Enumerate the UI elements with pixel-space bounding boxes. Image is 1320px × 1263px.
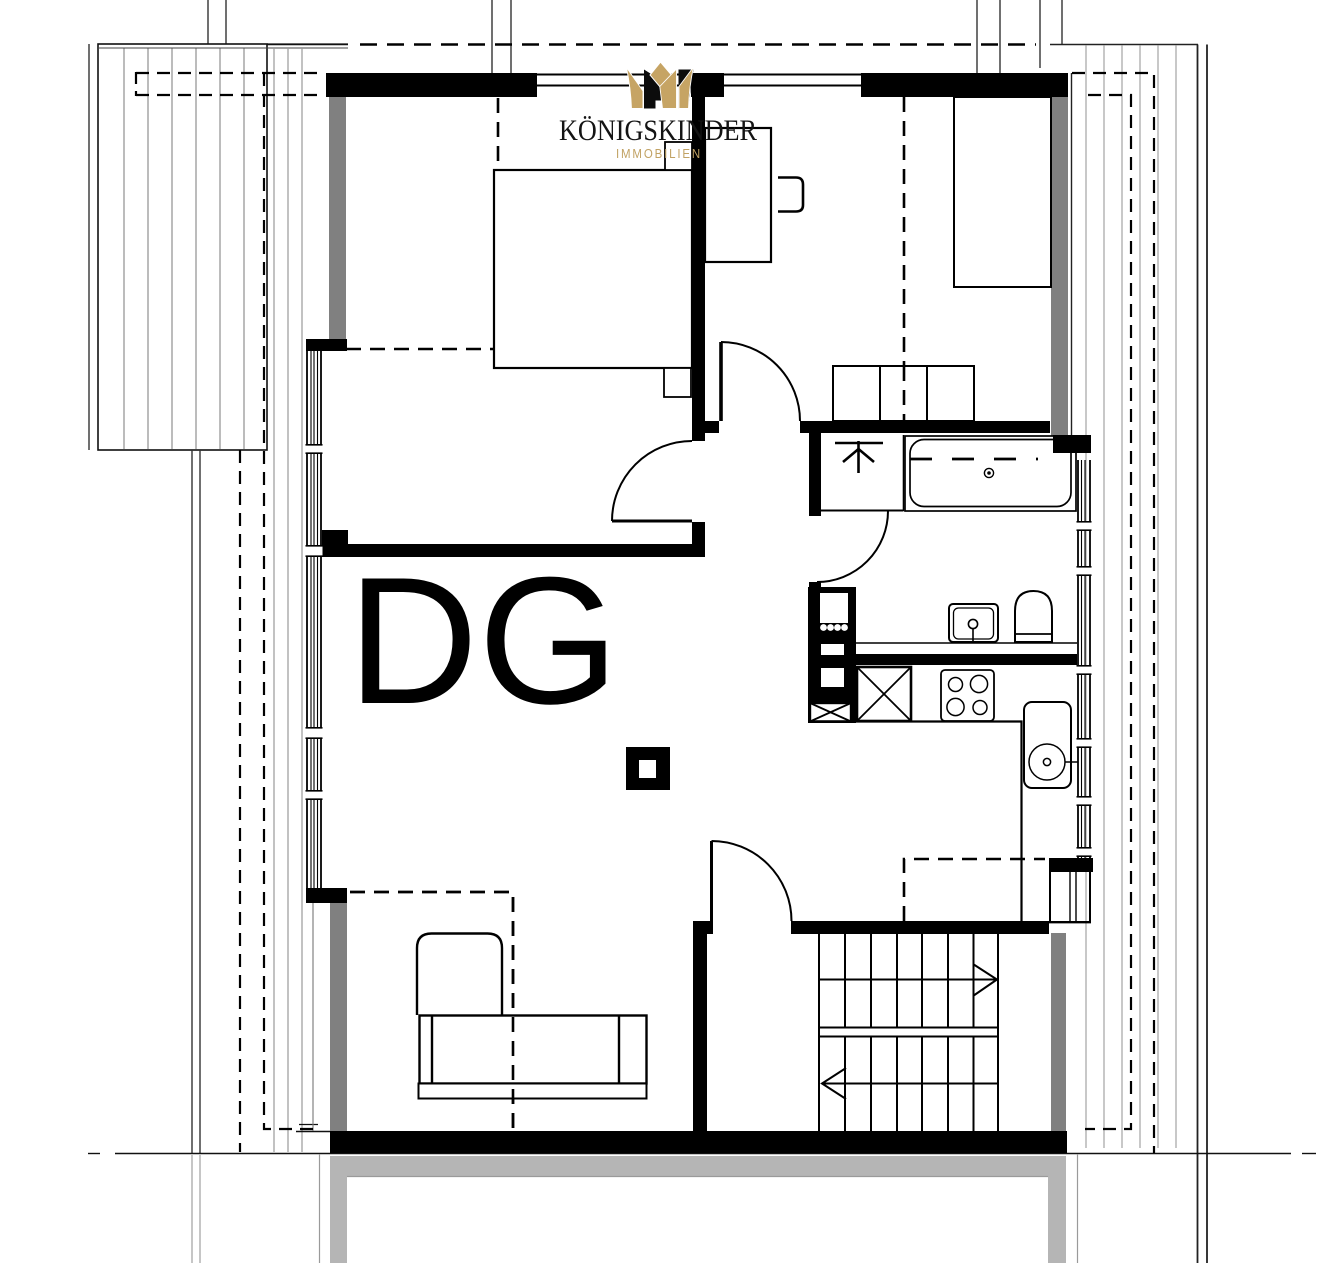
svg-text:DG: DG [348, 540, 620, 742]
svg-text:IMMOBILIEN: IMMOBILIEN [616, 147, 702, 161]
svg-text:KÖNIGSKINDER: KÖNIGSKINDER [559, 114, 757, 147]
